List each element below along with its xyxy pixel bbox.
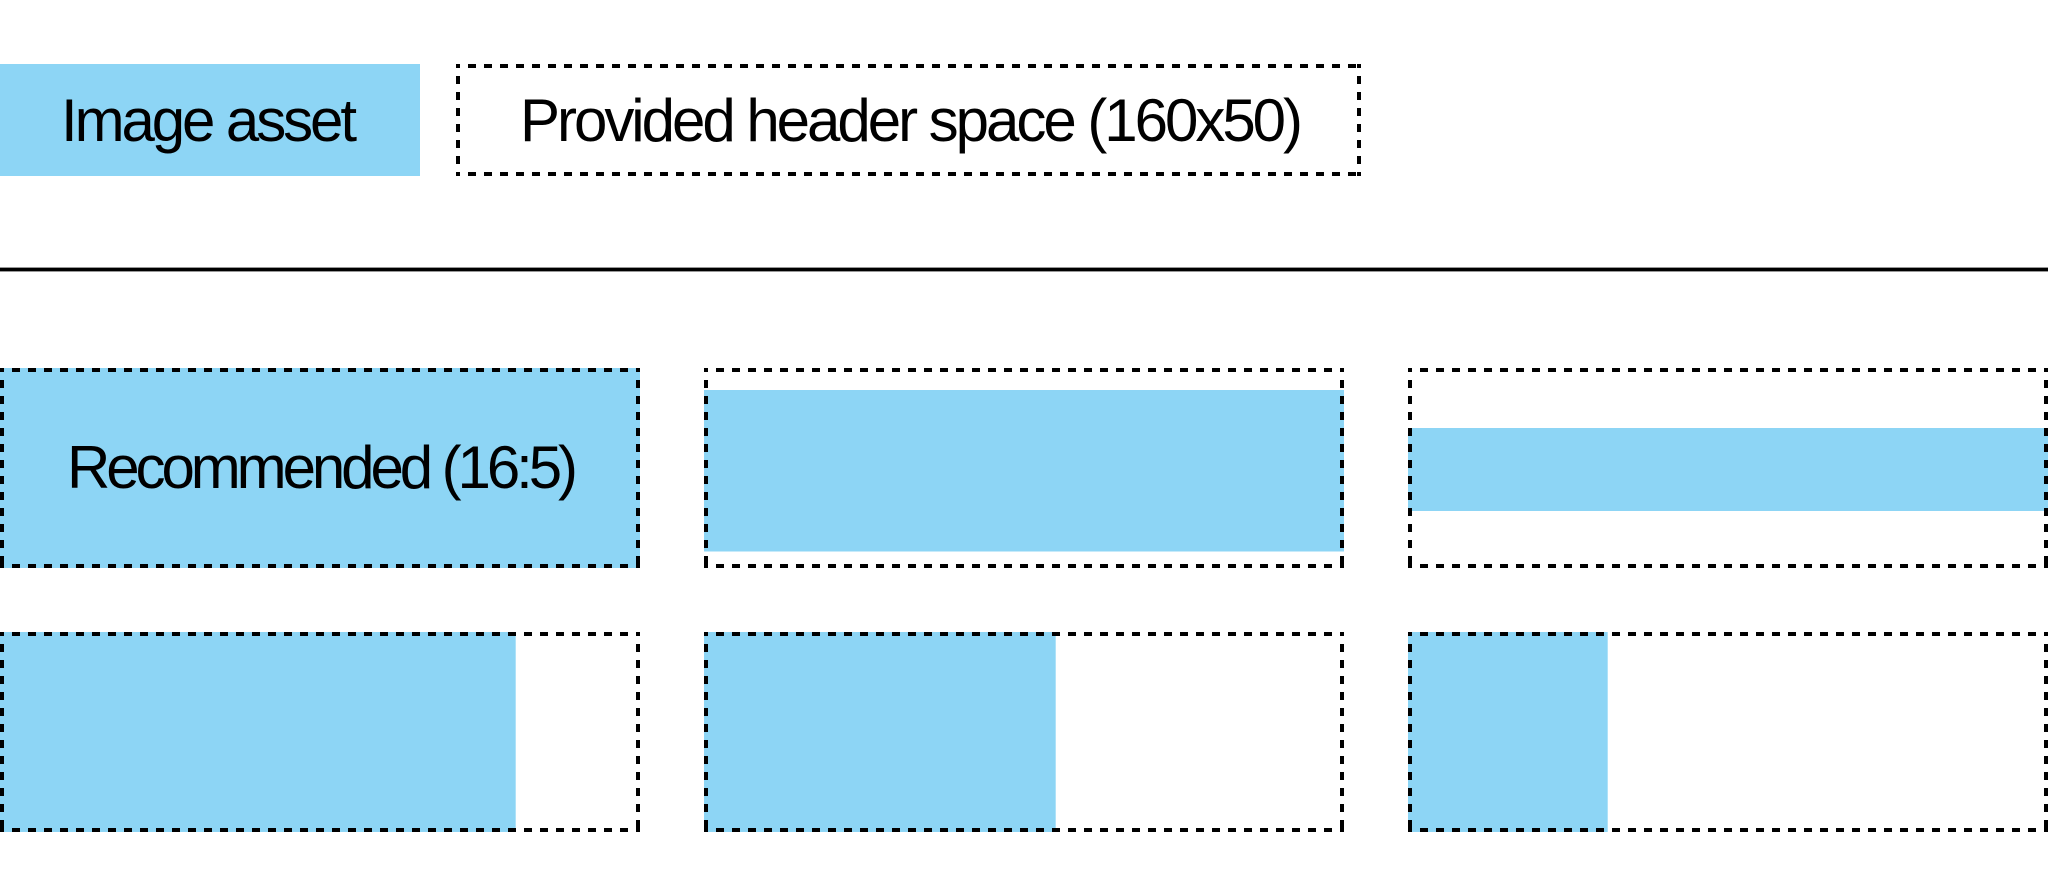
svg-text:Recommended (16:5): Recommended (16:5) <box>67 434 578 501</box>
svg-text:Image asset: Image asset <box>61 87 357 154</box>
svg-text:Provided header space (160x50): Provided header space (160x50) <box>520 87 1303 154</box>
